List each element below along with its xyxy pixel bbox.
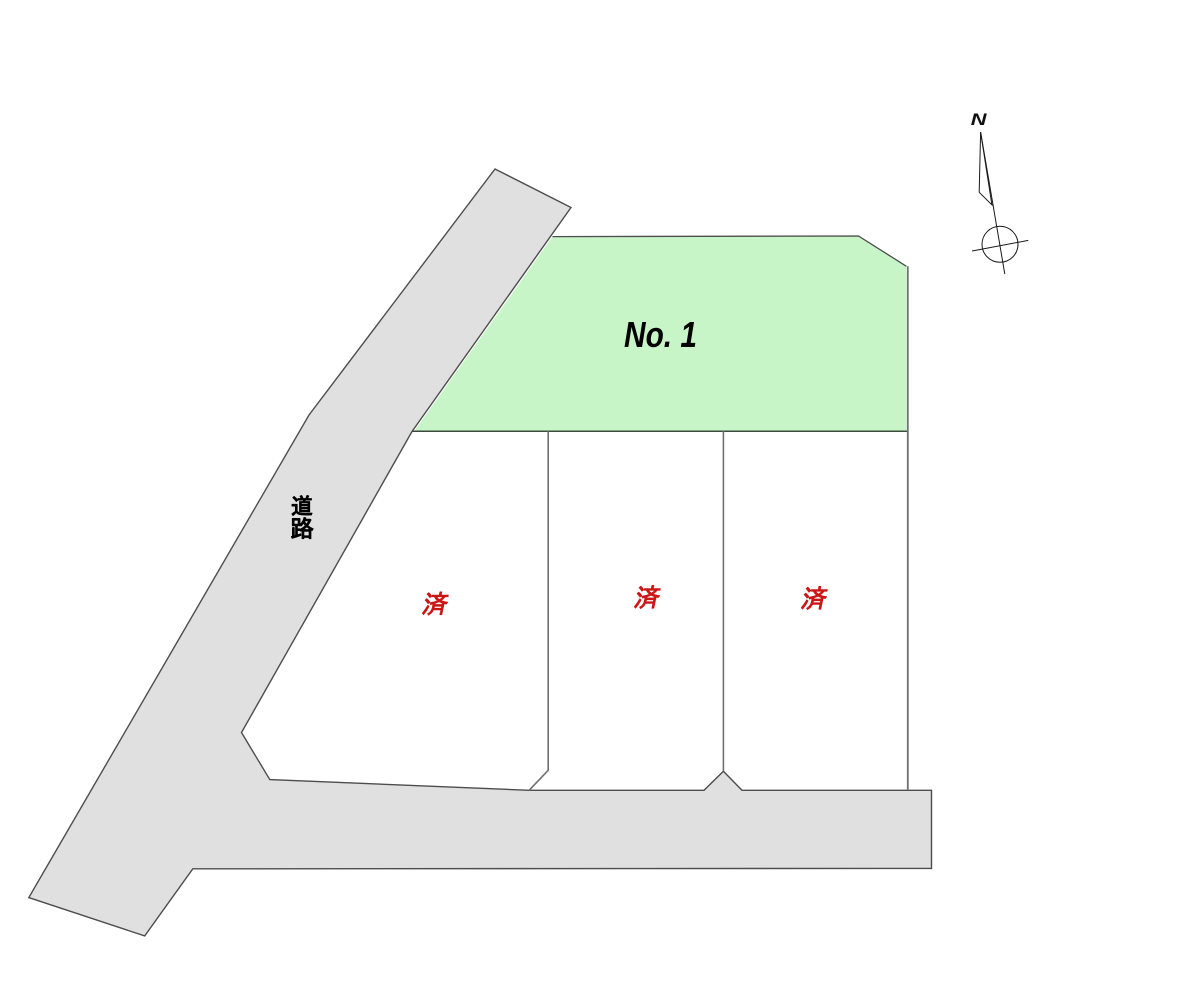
svg-text:N: N [971,111,988,129]
svg-text:No. 1: No. 1 [624,314,697,355]
